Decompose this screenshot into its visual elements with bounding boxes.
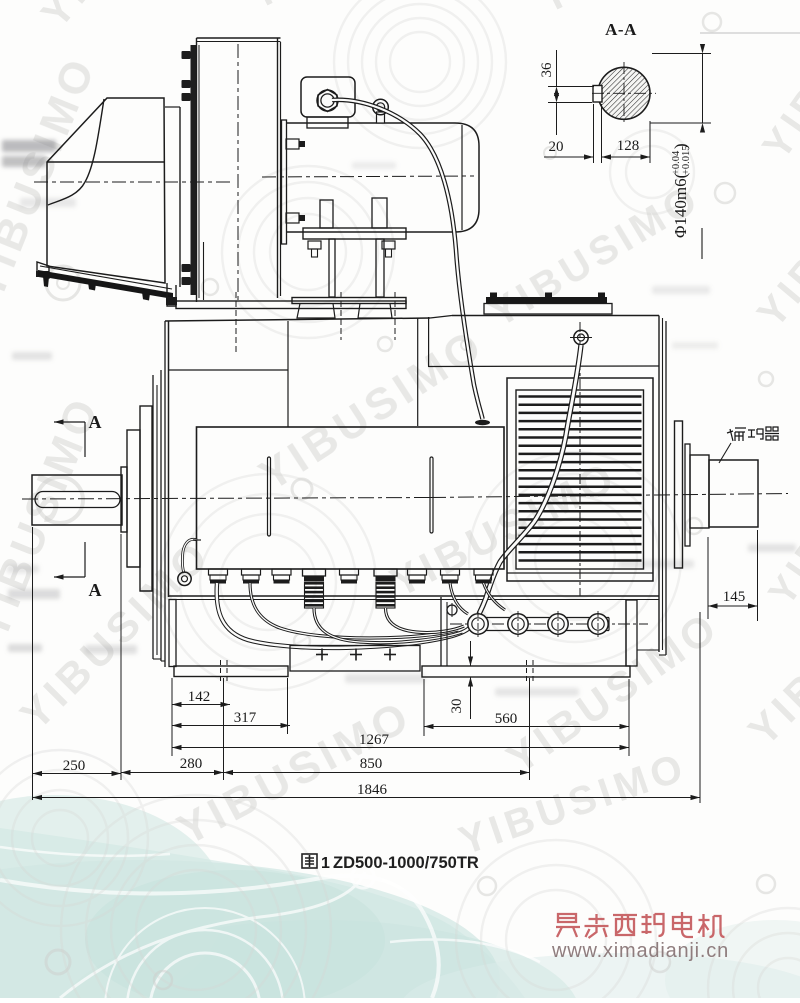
svg-text:36: 36: [539, 62, 555, 78]
svg-text:250: 250: [63, 758, 86, 774]
svg-text:1267: 1267: [359, 732, 390, 748]
svg-text:30: 30: [449, 699, 465, 714]
svg-text:560: 560: [495, 711, 518, 727]
svg-text:145: 145: [723, 589, 746, 605]
svg-text:A: A: [89, 412, 102, 432]
svg-text:A-A: A-A: [605, 20, 637, 39]
svg-text:): ): [671, 143, 690, 149]
svg-text:317: 317: [234, 710, 257, 726]
svg-text:142: 142: [188, 689, 211, 705]
svg-text:A: A: [89, 580, 102, 600]
svg-text:128: 128: [617, 138, 640, 154]
svg-text:ZD500-1000/750TR: ZD500-1000/750TR: [333, 854, 479, 872]
svg-text:1: 1: [321, 855, 330, 872]
svg-text:1846: 1846: [357, 782, 388, 798]
svg-text:20: 20: [549, 139, 564, 155]
svg-text:Φ140m6(: Φ140m6(: [671, 172, 690, 238]
svg-text:www.ximadianji.cn: www.ximadianji.cn: [551, 940, 729, 962]
svg-text:850: 850: [360, 756, 383, 772]
svg-text:280: 280: [180, 756, 203, 772]
